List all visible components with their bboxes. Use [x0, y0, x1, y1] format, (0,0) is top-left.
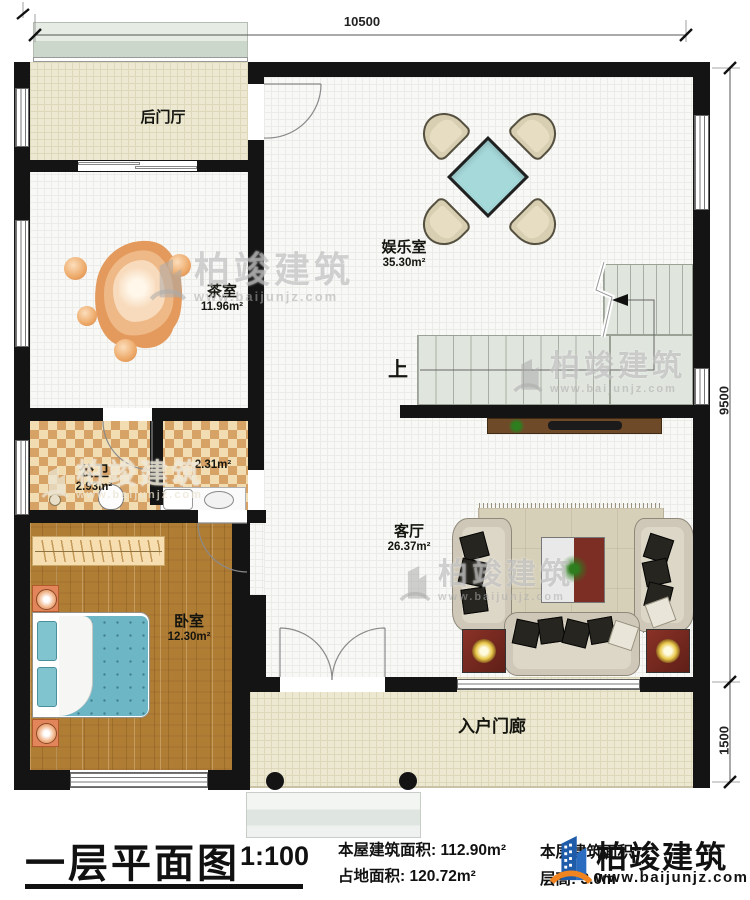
wall-tea-bottom	[152, 408, 264, 421]
room-name: 公卫	[76, 464, 112, 481]
company-logo: 柏竣建筑 www.baijunjz.com	[548, 830, 748, 892]
pillow	[37, 621, 57, 661]
wall-center-vertical	[248, 140, 264, 421]
title-underline	[25, 884, 303, 889]
room-area: 2.93m²	[76, 481, 112, 494]
wardrobe-rail	[35, 551, 162, 552]
plan-title: 一层平面图	[25, 831, 240, 889]
tea-room-label: 茶室11.96m²	[201, 284, 243, 314]
room-name: 后门厅	[140, 110, 185, 127]
room-name: 茶室	[201, 284, 243, 301]
entry-steps	[246, 792, 421, 838]
wall-left	[14, 62, 30, 790]
wall-top	[248, 62, 710, 77]
room-name: 客厅	[388, 524, 431, 541]
wall-bedroom-bottom	[14, 770, 70, 790]
table-lamp	[472, 639, 496, 663]
door-opening	[248, 84, 264, 140]
window	[694, 115, 709, 210]
room-area: 35.30m²	[381, 257, 426, 270]
logo-url: www.baijunjz.com	[595, 869, 748, 886]
dimension-tick	[724, 62, 736, 788]
land-area-value: 120.72m²	[409, 868, 475, 885]
wall-living-bottom	[385, 677, 457, 692]
tv	[548, 421, 622, 430]
house-area-value: 112.90m²	[440, 842, 506, 859]
shower-tray	[163, 489, 193, 510]
porch-label: 入户门廊	[458, 717, 526, 736]
porch-column	[266, 772, 284, 790]
tea-rock-highlight	[119, 267, 155, 309]
window	[457, 679, 640, 690]
stone	[64, 257, 87, 280]
stair-landing	[610, 335, 693, 405]
nightstand-lamp	[36, 589, 57, 610]
sliding-door-panel	[135, 166, 197, 169]
dimension-right-upper: 9500	[717, 380, 732, 422]
table-plant	[560, 555, 588, 583]
table-lamp	[656, 639, 680, 663]
bed	[32, 612, 150, 718]
wall-bath-divider	[150, 421, 163, 505]
stairs-up-label: 上	[388, 359, 408, 381]
porch-column	[399, 772, 417, 790]
wall-bedroom-top	[14, 510, 198, 523]
porch-glass-door	[33, 57, 248, 62]
door-opening	[280, 677, 385, 692]
room-area: 2.31m²	[195, 459, 231, 472]
plan-scale: 1:100	[240, 841, 309, 872]
wall-bedroom-right	[232, 523, 250, 790]
room-area: 26.37m²	[388, 541, 431, 554]
floor-plan: 后门厅 茶室11.96m² 娱乐室35.30m² 公卫2.93m² 2.31m²…	[0, 0, 750, 900]
wardrobe	[32, 536, 165, 566]
sliding-door	[78, 161, 197, 171]
room-name: 娱乐室	[381, 240, 426, 257]
back-hall-label: 后门厅	[140, 110, 185, 127]
living-room-label: 客厅26.37m²	[388, 524, 431, 554]
bedroom-label: 卧室12.30m²	[168, 614, 211, 644]
nightstand-lamp	[36, 723, 57, 744]
wall-bedroom-top	[247, 510, 266, 523]
room-area: 11.96m²	[201, 301, 243, 314]
wall-living-bottom	[250, 677, 280, 692]
utility-label: 2.31m²	[195, 459, 231, 472]
back-porch-steps	[33, 22, 248, 62]
house-area-label: 本屋建筑面积:	[338, 842, 436, 859]
console-plant	[508, 419, 525, 433]
window	[15, 88, 29, 147]
dimension-top: 10500	[332, 14, 392, 29]
wall-center-vertical	[248, 62, 264, 84]
stairs-up-text: 上	[388, 359, 408, 381]
stone	[77, 306, 97, 326]
window	[15, 220, 29, 347]
sliding-door-panel	[78, 162, 140, 165]
wall-bath-right	[248, 421, 264, 470]
stone	[114, 339, 137, 362]
room-name: 卧室	[168, 614, 211, 631]
sink	[204, 491, 234, 509]
pillow	[37, 667, 57, 707]
window	[694, 368, 709, 405]
room-name: 入户门廊	[458, 717, 526, 736]
door-opening	[198, 510, 247, 523]
back-hall-floor	[30, 62, 248, 160]
company-logo-icon	[548, 832, 594, 886]
land-area-label: 占地面积:	[338, 868, 405, 885]
pillow	[458, 558, 488, 588]
dimension-right-lower: 1500	[717, 720, 732, 762]
bathroom-label: 公卫2.93m²	[76, 464, 112, 494]
entertainment-label: 娱乐室35.30m²	[381, 240, 426, 270]
wall-tea-bottom	[30, 408, 103, 421]
rug-fringe-top	[479, 503, 663, 508]
window	[70, 772, 208, 788]
wall-bedroom-bottom	[208, 770, 250, 790]
door-opening	[103, 408, 152, 421]
stair-main-flight	[417, 335, 610, 405]
floor-drain	[49, 494, 61, 506]
window	[15, 440, 29, 515]
house-area-line: 本屋建筑面积: 112.90m²	[338, 838, 506, 860]
stair-upper-flight	[603, 264, 693, 335]
room-area: 12.30m²	[168, 631, 211, 644]
stone	[168, 254, 191, 277]
wall-living-bottom	[640, 677, 693, 692]
pillow	[460, 586, 488, 614]
land-area-line: 占地面积: 120.72m²	[338, 864, 476, 886]
wall-under-stairs	[400, 405, 693, 418]
